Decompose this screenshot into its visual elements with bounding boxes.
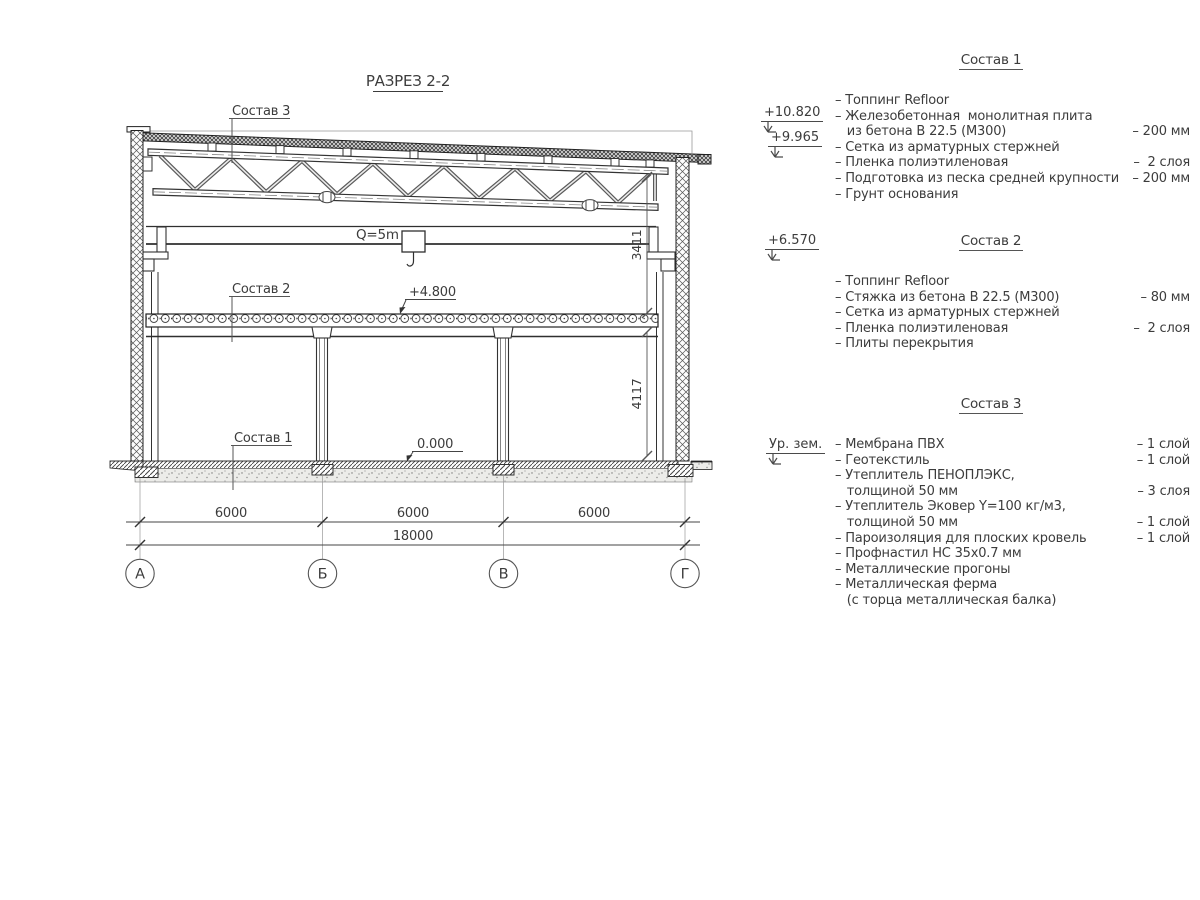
spec-title: Состав 3 (792, 396, 1190, 412)
spec-block-3: Состав 3 – Мембрана ПВХ– 1 слой – Геотек… (792, 396, 1190, 609)
level-4800: +4.800 (409, 285, 456, 300)
label-sostav2: Состав 2 (232, 282, 290, 297)
spec-row: – Подготовка из песка средней крупности–… (792, 171, 1190, 187)
spec-row: – Геотекстиль– 1 слой (792, 453, 1190, 469)
spec-block-1: Состав 1 – Топпинг Refloor – Железобетон… (792, 52, 1190, 202)
level-0000: 0.000 (417, 437, 453, 452)
right-wall (676, 158, 689, 462)
dim-bay-2: 6000 (397, 506, 429, 521)
spec-row: – Пароизоляция для плоских кровель– 1 сл… (792, 531, 1190, 547)
spec-row: – Металлическая ферма (792, 577, 1190, 593)
dim-4117: 4117 (629, 378, 644, 409)
spec-row: – Стяжка из бетона В 22.5 (М300)– 80 мм (792, 290, 1190, 306)
spec-row: – Мембрана ПВХ– 1 слой (792, 437, 1190, 453)
section-drawing: Q=5m РА (0, 0, 760, 660)
floor-slab-4800 (146, 314, 658, 337)
bottom-dimensions: 6000 6000 6000 18000 (126, 476, 700, 559)
axis-b: Б (318, 567, 328, 583)
crane-hook-icon (407, 252, 414, 266)
spec-row: – Сетка из арматурных стержней (792, 140, 1190, 156)
spec-block-2: Состав 2 – Топпинг Refloor – Стяжка из б… (792, 233, 1190, 352)
spec-row: – Топпинг Refloor (792, 274, 1190, 290)
spec-row: – Пленка полиэтиленовая– 2 слоя (792, 321, 1190, 337)
elevation-arrow-icon (766, 454, 784, 467)
spec-row: из бетона В 22.5 (М300)– 200 мм (792, 124, 1190, 140)
spec-row: – Профнастил НС 35х0.7 мм (792, 546, 1190, 562)
spec-row: – Утеплитель Эковер Y=100 кг/м3, (792, 499, 1190, 515)
left-wall (131, 131, 143, 462)
label-sostav3: Состав 3 (232, 104, 290, 119)
label-sostav1: Состав 1 (234, 431, 292, 446)
spec-row: толщиной 50 мм– 3 слоя (792, 484, 1190, 500)
elevation-arrow-icon (765, 250, 783, 263)
spec-row: – Железобетонная монолитная плита (792, 109, 1190, 125)
interior-columns (312, 327, 513, 461)
axis-v: В (499, 567, 509, 583)
svg-text:РАЗРЕЗ 2-2: РАЗРЕЗ 2-2 (366, 72, 450, 90)
drawing-sheet: Q=5m РА (0, 0, 1200, 900)
level-marks: +4.800 0.000 (400, 285, 464, 462)
spec-row: – Металлические прогоны (792, 562, 1190, 578)
axis-a: А (135, 567, 145, 583)
spec-row: – Грунт основания (792, 187, 1190, 203)
dim-3411: 3411 (629, 229, 644, 260)
spec-row: – Топпинг Refloor (792, 93, 1190, 109)
spec-row: толщиной 50 мм– 1 слой (792, 515, 1190, 531)
dim-total: 18000 (393, 529, 433, 544)
ground-floor (110, 461, 712, 482)
spec-row: (с торца металлическая балка) (792, 593, 1190, 609)
edge-columns (152, 272, 664, 461)
spec-row: – Плиты перекрытия (792, 336, 1190, 352)
spec-row: – Пленка полиэтиленовая– 2 слоя (792, 155, 1190, 171)
drawing-title: РАЗРЕЗ 2-2 (366, 72, 450, 92)
dim-bay-1: 6000 (215, 506, 247, 521)
layer-labels: Состав 3 Состав 2 Состав 1 (229, 104, 292, 490)
crane-hoist (402, 231, 425, 266)
axis-bubbles: А Б В Г (126, 559, 699, 587)
dim-bay-3: 6000 (578, 506, 610, 521)
spec-row: – Утеплитель ПЕНОПЛЭКС, (792, 468, 1190, 484)
crane-capacity-label: Q=5m (356, 227, 399, 243)
spec-row: – Сетка из арматурных стержней (792, 305, 1190, 321)
axis-g: Г (681, 567, 690, 583)
spec-title: Состав 2 (792, 233, 1190, 249)
crane-runway: Q=5m (140, 227, 675, 272)
elevation-arrow-icon (768, 147, 786, 160)
spec-title: Состав 1 (792, 52, 1190, 68)
